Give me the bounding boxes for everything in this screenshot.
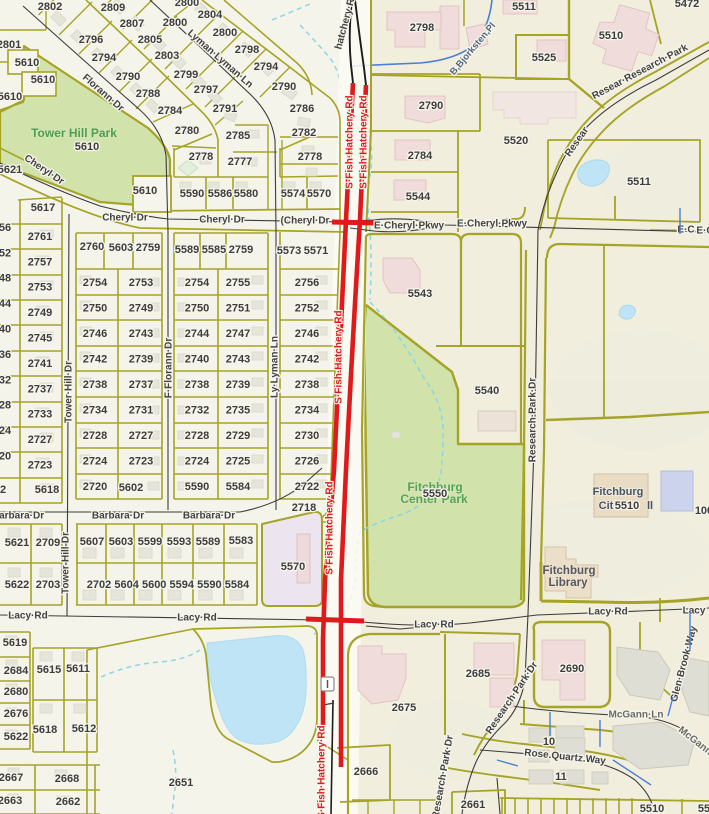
svg-text:2723: 2723 (129, 455, 153, 467)
svg-text:S·Fish·Hatchery·Rd: S·Fish·Hatchery·Rd (345, 95, 356, 188)
svg-text:2661: 2661 (461, 799, 485, 811)
svg-text:F·Florann·Dr: F·Florann·Dr (164, 338, 175, 399)
svg-text:2799: 2799 (174, 69, 198, 81)
svg-text:2800: 2800 (175, 0, 199, 9)
svg-text:5622: 5622 (4, 731, 28, 743)
svg-text:2734: 2734 (295, 404, 320, 416)
svg-text:5544: 5544 (406, 191, 431, 203)
svg-text:2798: 2798 (235, 44, 259, 56)
svg-text:2726: 2726 (295, 455, 319, 467)
svg-text:2739: 2739 (226, 379, 250, 391)
svg-text:Cheryl·Dr: Cheryl·Dr (199, 215, 245, 226)
svg-text:2805: 2805 (138, 34, 162, 46)
svg-text:2794: 2794 (254, 61, 279, 73)
svg-text:5511: 5511 (512, 1, 536, 13)
svg-text:2790: 2790 (272, 81, 296, 93)
svg-text:2746: 2746 (295, 328, 319, 340)
svg-text:2718: 2718 (292, 502, 316, 514)
svg-text:E·Cheryl·Pkwy: E·Cheryl·Pkwy (374, 221, 444, 232)
svg-text:100: 100 (695, 505, 709, 517)
svg-text:Barbara·Dr: Barbara·Dr (0, 511, 44, 522)
svg-text:Tower-Hill-Dr: Tower-Hill-Dr (61, 532, 72, 594)
svg-text:5589: 5589 (196, 536, 220, 548)
svg-text:55: 55 (698, 803, 709, 814)
svg-text:5573: 5573 (277, 245, 301, 257)
svg-text:5583: 5583 (229, 535, 253, 547)
svg-text:5593: 5593 (167, 536, 191, 548)
svg-text:2782: 2782 (292, 127, 316, 139)
svg-text:2732: 2732 (185, 404, 209, 416)
svg-text:2738: 2738 (83, 379, 107, 391)
svg-text:2728: 2728 (185, 430, 209, 442)
svg-text:2796: 2796 (79, 34, 103, 46)
svg-text:2684: 2684 (4, 665, 29, 677)
svg-text:2777: 2777 (228, 156, 252, 168)
svg-text:Lacy·Rd: Lacy·Rd (588, 607, 627, 618)
svg-text:E·C: E·C (696, 226, 709, 237)
svg-text:2753: 2753 (129, 277, 153, 289)
svg-text:2723: 2723 (28, 460, 52, 472)
svg-text:2802: 2802 (38, 1, 62, 13)
svg-text:S·Fish·Hatchery·Rd: S·Fish·Hatchery·Rd (325, 481, 336, 574)
svg-text:5472: 5472 (675, 0, 699, 10)
svg-text:2752: 2752 (295, 302, 319, 314)
svg-text:5510: 5510 (615, 500, 639, 512)
svg-text:2739: 2739 (129, 353, 153, 365)
svg-text:2727: 2727 (28, 434, 52, 446)
svg-text:5610: 5610 (75, 141, 99, 153)
svg-text:2798: 2798 (410, 22, 434, 34)
svg-text:2759: 2759 (136, 242, 160, 254)
svg-text:2780: 2780 (175, 125, 199, 137)
svg-text:2750: 2750 (83, 302, 107, 314)
svg-text:5584: 5584 (225, 579, 250, 591)
svg-text:5599: 5599 (138, 536, 162, 548)
svg-text:5604: 5604 (114, 579, 139, 591)
svg-text:Fitchburg: Fitchburg (593, 486, 644, 498)
svg-text:5603: 5603 (109, 242, 133, 254)
svg-text:2794: 2794 (92, 52, 117, 64)
svg-text:5543: 5543 (408, 288, 432, 300)
svg-text:2746: 2746 (83, 328, 107, 340)
svg-text:2743: 2743 (226, 353, 250, 365)
svg-text:11: 11 (555, 771, 567, 783)
svg-text:2663: 2663 (0, 795, 22, 807)
svg-text:2778: 2778 (189, 151, 213, 163)
svg-text:2675: 2675 (392, 702, 416, 714)
svg-text:Library: Library (549, 577, 589, 589)
svg-text:5594: 5594 (170, 579, 195, 591)
svg-text:2747: 2747 (226, 328, 250, 340)
svg-text:Lacy·Rd: Lacy·Rd (8, 611, 47, 622)
svg-text:5612: 5612 (72, 723, 96, 735)
svg-text:2731: 2731 (129, 404, 153, 416)
svg-text:2724: 2724 (83, 455, 108, 467)
svg-text:2784: 2784 (158, 105, 183, 117)
svg-text:2754: 2754 (185, 277, 210, 289)
svg-text:2737: 2737 (28, 383, 52, 395)
svg-text:5617: 5617 (31, 202, 55, 214)
svg-text:5520: 5520 (504, 135, 528, 147)
svg-text:2744: 2744 (185, 328, 210, 340)
svg-text:5586: 5586 (208, 188, 232, 200)
svg-text:5590: 5590 (185, 481, 209, 493)
svg-text:5618: 5618 (33, 724, 57, 736)
svg-text:2801: 2801 (0, 39, 21, 51)
svg-text:E·Cheryl·Pkwy: E·Cheryl·Pkwy (457, 219, 527, 230)
svg-text:2690: 2690 (560, 663, 584, 675)
svg-text:5574: 5574 (281, 188, 306, 200)
svg-text:2724: 2724 (185, 455, 210, 467)
svg-text:28: 28 (0, 400, 11, 412)
svg-text:2750: 2750 (185, 302, 209, 314)
svg-text:5622: 5622 (5, 579, 29, 591)
svg-text:5570: 5570 (281, 561, 305, 573)
svg-text:2733: 2733 (28, 409, 52, 421)
svg-text:2: 2 (0, 484, 6, 496)
svg-text:20: 20 (0, 451, 11, 463)
svg-text:48: 48 (0, 273, 11, 285)
svg-text:2735: 2735 (226, 404, 250, 416)
svg-text:2741: 2741 (28, 358, 52, 370)
svg-text:Fitchburg: Fitchburg (542, 565, 595, 577)
svg-text:2685: 2685 (466, 668, 490, 680)
svg-text:2800: 2800 (163, 17, 187, 29)
svg-text:5621: 5621 (0, 164, 22, 176)
svg-text:2742: 2742 (83, 353, 107, 365)
svg-text:2809: 2809 (101, 2, 125, 14)
svg-text:2740: 2740 (185, 353, 209, 365)
svg-text:2757: 2757 (28, 256, 52, 268)
svg-text:5590: 5590 (197, 579, 221, 591)
svg-text:5610: 5610 (31, 74, 55, 86)
svg-text:5510: 5510 (640, 803, 664, 814)
svg-text:5618: 5618 (35, 484, 59, 496)
svg-text:2788: 2788 (136, 88, 160, 100)
svg-text:2784: 2784 (408, 150, 433, 162)
svg-text:Ly·Lyman·Ln: Ly·Lyman·Ln (270, 336, 281, 398)
svg-text:2790: 2790 (419, 100, 443, 112)
svg-text:5621: 5621 (5, 537, 29, 549)
svg-text:2749: 2749 (129, 302, 153, 314)
svg-text:2662: 2662 (56, 796, 80, 808)
svg-text:5540: 5540 (475, 385, 499, 397)
svg-text:5510: 5510 (599, 30, 623, 42)
svg-text:2807: 2807 (120, 18, 144, 30)
svg-text:2729: 2729 (226, 430, 250, 442)
svg-text:2742: 2742 (295, 353, 319, 365)
svg-text:2755: 2755 (226, 277, 250, 289)
svg-text:2680: 2680 (4, 686, 28, 698)
svg-text:2727: 2727 (129, 430, 153, 442)
svg-text:Cit: Cit (599, 500, 614, 512)
svg-text:5615: 5615 (37, 664, 61, 676)
svg-text:2745: 2745 (28, 333, 52, 345)
svg-text:5580: 5580 (234, 188, 258, 200)
svg-text:2804: 2804 (198, 9, 223, 21)
svg-text:2785: 2785 (226, 130, 250, 142)
svg-text:S·Fish·Hatchery·Rd: S·Fish·Hatchery·Rd (317, 725, 328, 814)
svg-text:2800: 2800 (213, 27, 237, 39)
svg-text:Research·Park·Dr: Research·Park·Dr (528, 378, 539, 463)
svg-text:24: 24 (0, 425, 12, 437)
svg-text:2760: 2760 (80, 241, 104, 253)
svg-text:Barbara·Dr: Barbara·Dr (92, 511, 144, 522)
svg-text:2728: 2728 (83, 430, 107, 442)
svg-text:2797: 2797 (194, 84, 218, 96)
svg-text:2668: 2668 (55, 773, 79, 785)
svg-text:32: 32 (0, 374, 11, 386)
svg-text:Lacy: Lacy (683, 606, 706, 617)
svg-text:2676: 2676 (4, 708, 28, 720)
svg-text:2791: 2791 (213, 103, 237, 115)
svg-text:2720: 2720 (83, 481, 107, 493)
svg-text:5603: 5603 (109, 536, 133, 548)
svg-text:5610: 5610 (0, 91, 22, 103)
svg-text:ll: ll (647, 500, 653, 512)
svg-text:2751: 2751 (226, 302, 250, 314)
svg-text:2743: 2743 (129, 328, 153, 340)
svg-text:(Cheryl·Dr: (Cheryl·Dr (281, 216, 330, 227)
svg-text:5611: 5611 (66, 663, 90, 675)
svg-text:5525: 5525 (532, 52, 556, 64)
svg-text:5610: 5610 (15, 57, 39, 69)
svg-text:2702: 2702 (87, 579, 111, 591)
svg-text:36: 36 (0, 349, 11, 361)
svg-text:5511: 5511 (627, 176, 651, 188)
svg-text:2651: 2651 (169, 777, 193, 789)
svg-text:5590: 5590 (180, 188, 204, 200)
svg-text:5584: 5584 (226, 481, 251, 493)
svg-text:5571: 5571 (304, 245, 328, 257)
svg-text:5550: 5550 (423, 488, 447, 500)
svg-text:2667: 2667 (0, 772, 23, 784)
svg-text:2709: 2709 (36, 537, 60, 549)
svg-text:2725: 2725 (226, 455, 250, 467)
svg-text:5602: 5602 (119, 482, 143, 494)
svg-text:2722: 2722 (295, 481, 319, 493)
svg-text:2749: 2749 (28, 307, 52, 319)
svg-text:2803: 2803 (155, 50, 179, 62)
svg-text:2778: 2778 (298, 151, 322, 163)
svg-text:2761: 2761 (28, 231, 52, 243)
svg-text:2737: 2737 (129, 379, 153, 391)
svg-text:5585: 5585 (202, 244, 226, 256)
svg-text:2734: 2734 (83, 404, 108, 416)
svg-text:Barbara·Dr: Barbara·Dr (183, 511, 235, 522)
svg-text:McGann·Ln: McGann·Ln (609, 710, 664, 721)
svg-text:S·Fish·Hatchery·Rd: S·Fish·Hatchery·Rd (359, 95, 370, 188)
svg-text:Tower·Hill·Dr: Tower·Hill·Dr (64, 361, 75, 423)
svg-text:2738: 2738 (295, 379, 319, 391)
svg-text:5610: 5610 (133, 185, 157, 197)
svg-text:Cheryl·Dr: Cheryl·Dr (102, 213, 148, 224)
svg-text:Lacy·Rd: Lacy·Rd (414, 620, 453, 631)
svg-text:2790: 2790 (116, 71, 140, 83)
svg-text:2756: 2756 (295, 277, 319, 289)
svg-text:2759: 2759 (229, 244, 253, 256)
svg-text:Lacy·Rd: Lacy·Rd (177, 613, 216, 624)
svg-text:2753: 2753 (28, 282, 52, 294)
svg-text:2786: 2786 (290, 103, 314, 115)
svg-text:5619: 5619 (3, 637, 27, 649)
svg-text:5600: 5600 (142, 579, 166, 591)
svg-text:52: 52 (0, 247, 11, 259)
svg-text:S·Fish·Hatchery·Rd: S·Fish·Hatchery·Rd (334, 310, 345, 403)
svg-text:5570: 5570 (307, 188, 331, 200)
svg-text:2703: 2703 (36, 579, 60, 591)
svg-text:2754: 2754 (83, 277, 108, 289)
svg-text:Tower Hill Park: Tower Hill Park (31, 126, 117, 140)
svg-text:5607: 5607 (80, 536, 104, 548)
svg-text:2738: 2738 (185, 379, 209, 391)
svg-text:2730: 2730 (295, 430, 319, 442)
svg-text:56: 56 (0, 222, 11, 234)
svg-text:10: 10 (543, 736, 555, 748)
svg-text:2666: 2666 (354, 766, 378, 778)
svg-text:5589: 5589 (175, 244, 199, 256)
svg-text:40: 40 (0, 324, 11, 336)
svg-text:44: 44 (0, 298, 12, 310)
